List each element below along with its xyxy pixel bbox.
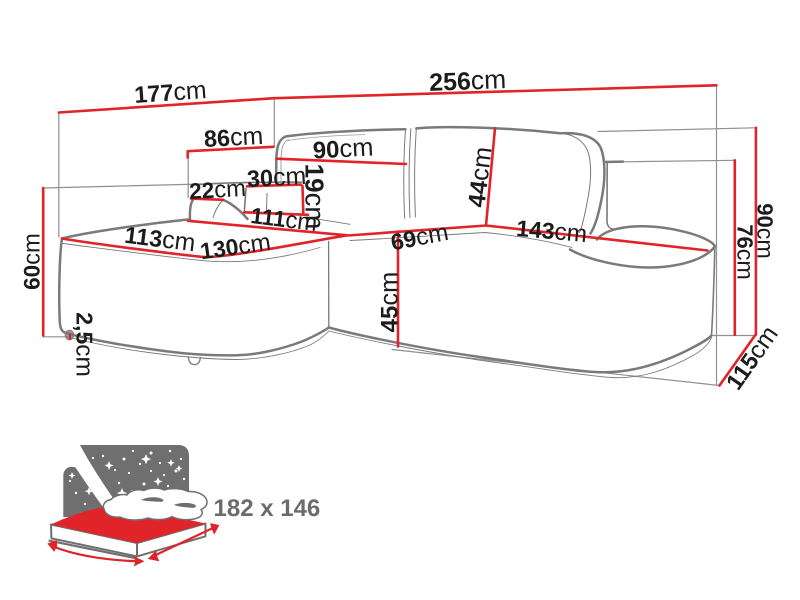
svg-text:2,5cm: 2,5cm [71, 312, 98, 376]
svg-text:30cm: 30cm [246, 162, 307, 193]
svg-text:182 x 146: 182 x 146 [214, 495, 321, 522]
svg-text:90cm: 90cm [312, 133, 374, 164]
svg-text:45cm: 45cm [376, 272, 404, 333]
svg-text:76cm: 76cm [733, 224, 759, 280]
svg-text:86cm: 86cm [203, 122, 264, 153]
svg-text:60cm: 60cm [19, 233, 46, 290]
svg-text:177cm: 177cm [133, 76, 207, 109]
svg-text:256cm: 256cm [429, 64, 507, 97]
svg-text:22cm: 22cm [189, 175, 247, 205]
